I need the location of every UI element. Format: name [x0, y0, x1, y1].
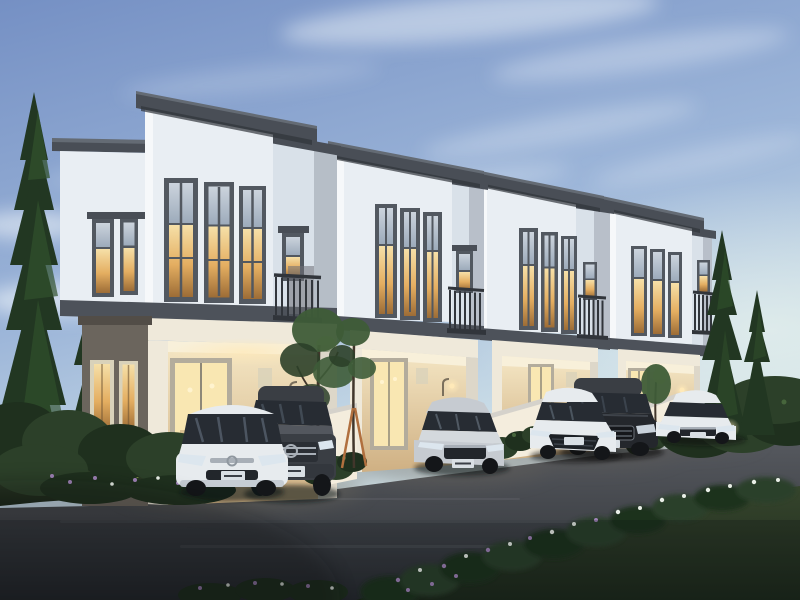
wheel	[631, 442, 649, 456]
wheel	[425, 456, 443, 472]
wheel	[186, 480, 206, 496]
wheel	[594, 446, 610, 460]
bay-windows	[519, 228, 577, 334]
wall-mirror	[258, 368, 272, 388]
bay-edge-highlight	[145, 107, 153, 304]
wall-art	[416, 368, 428, 384]
car-hatchback-white	[176, 405, 288, 501]
grille-chrome-bar	[444, 445, 486, 448]
bay-edge-highlight	[610, 210, 616, 340]
wheel	[256, 480, 276, 496]
wheel	[540, 445, 556, 459]
grille-chrome-bar	[680, 427, 716, 430]
townhouse-render: Two-storey modern townhouse row at dusk …	[0, 0, 800, 600]
license-plate	[564, 437, 584, 445]
window-awning	[87, 212, 145, 219]
balcony-window	[583, 262, 597, 300]
carport-door	[370, 358, 408, 450]
wheel	[313, 474, 331, 496]
wheel	[667, 431, 681, 443]
bay-windows	[375, 204, 442, 322]
scene-canvas: Two-storey modern townhouse row at dusk …	[0, 0, 800, 600]
license-plate	[690, 432, 706, 438]
sconce-glow	[444, 378, 460, 394]
grille-chrome-bar	[210, 458, 254, 463]
wall-cap	[78, 316, 152, 325]
bay-windows	[164, 178, 266, 304]
bay-edge-highlight	[337, 158, 344, 318]
wheel	[482, 458, 498, 474]
wheel	[715, 432, 729, 444]
windshield	[664, 402, 728, 418]
bay-windows	[631, 246, 682, 338]
balcony-window	[697, 260, 710, 294]
left-wing	[52, 138, 156, 308]
